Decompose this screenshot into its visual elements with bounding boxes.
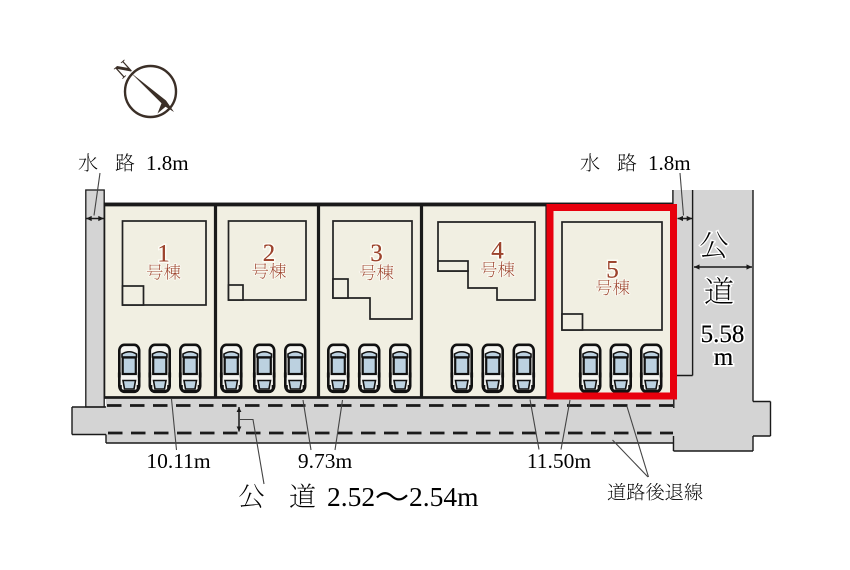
svg-text:3: 3 [370, 240, 383, 267]
svg-text:4: 4 [491, 238, 504, 265]
svg-text:2.54m: 2.54m [409, 481, 479, 512]
svg-text:2.52: 2.52 [327, 481, 375, 512]
svg-text:11.50m: 11.50m [527, 449, 592, 473]
svg-text:9.73m: 9.73m [298, 449, 353, 473]
svg-text:1.8m: 1.8m [648, 151, 691, 175]
svg-text:10.11m: 10.11m [146, 449, 211, 473]
svg-text:m: m [714, 344, 734, 371]
svg-text:1.8m: 1.8m [146, 151, 189, 175]
